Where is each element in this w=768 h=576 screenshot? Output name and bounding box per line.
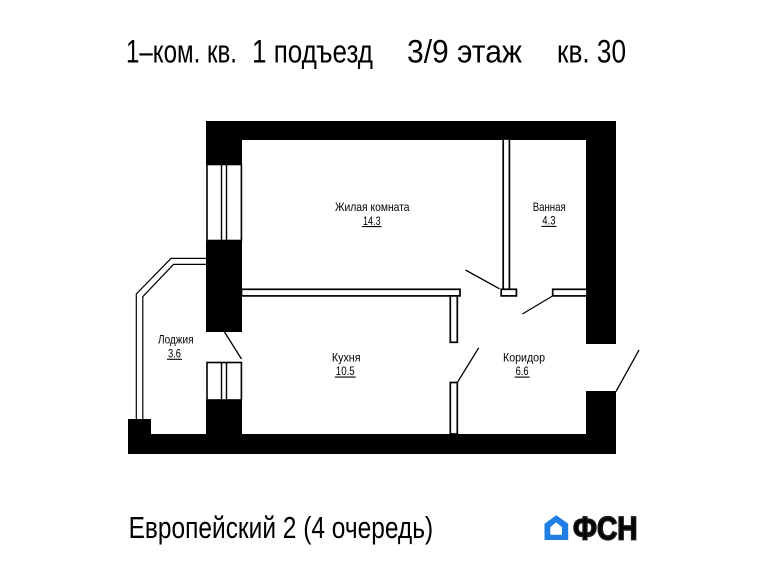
svg-text:Ванная: Ванная (533, 200, 566, 214)
svg-text:6.6: 6.6 (516, 364, 529, 378)
svg-text:1–ком. кв.: 1–ком. кв. (126, 33, 237, 69)
svg-text:Лоджия: Лоджия (158, 332, 194, 346)
svg-text:Европейский 2 (4 очередь): Европейский 2 (4 очередь) (129, 510, 434, 545)
svg-text:3.6: 3.6 (168, 347, 181, 361)
svg-text:1 подъезд: 1 подъезд (252, 33, 373, 69)
svg-text:Коридор: Коридор (503, 351, 545, 365)
svg-text:10.5: 10.5 (336, 364, 355, 378)
svg-text:3/9 этаж: 3/9 этаж (407, 33, 522, 69)
svg-text:Жилая комната: Жилая комната (335, 200, 410, 214)
svg-text:4.3: 4.3 (542, 214, 555, 228)
svg-text:ФСН: ФСН (573, 510, 638, 546)
svg-text:кв. 30: кв. 30 (557, 33, 626, 69)
svg-text:Кухня: Кухня (332, 351, 361, 365)
svg-text:14.3: 14.3 (363, 214, 381, 228)
